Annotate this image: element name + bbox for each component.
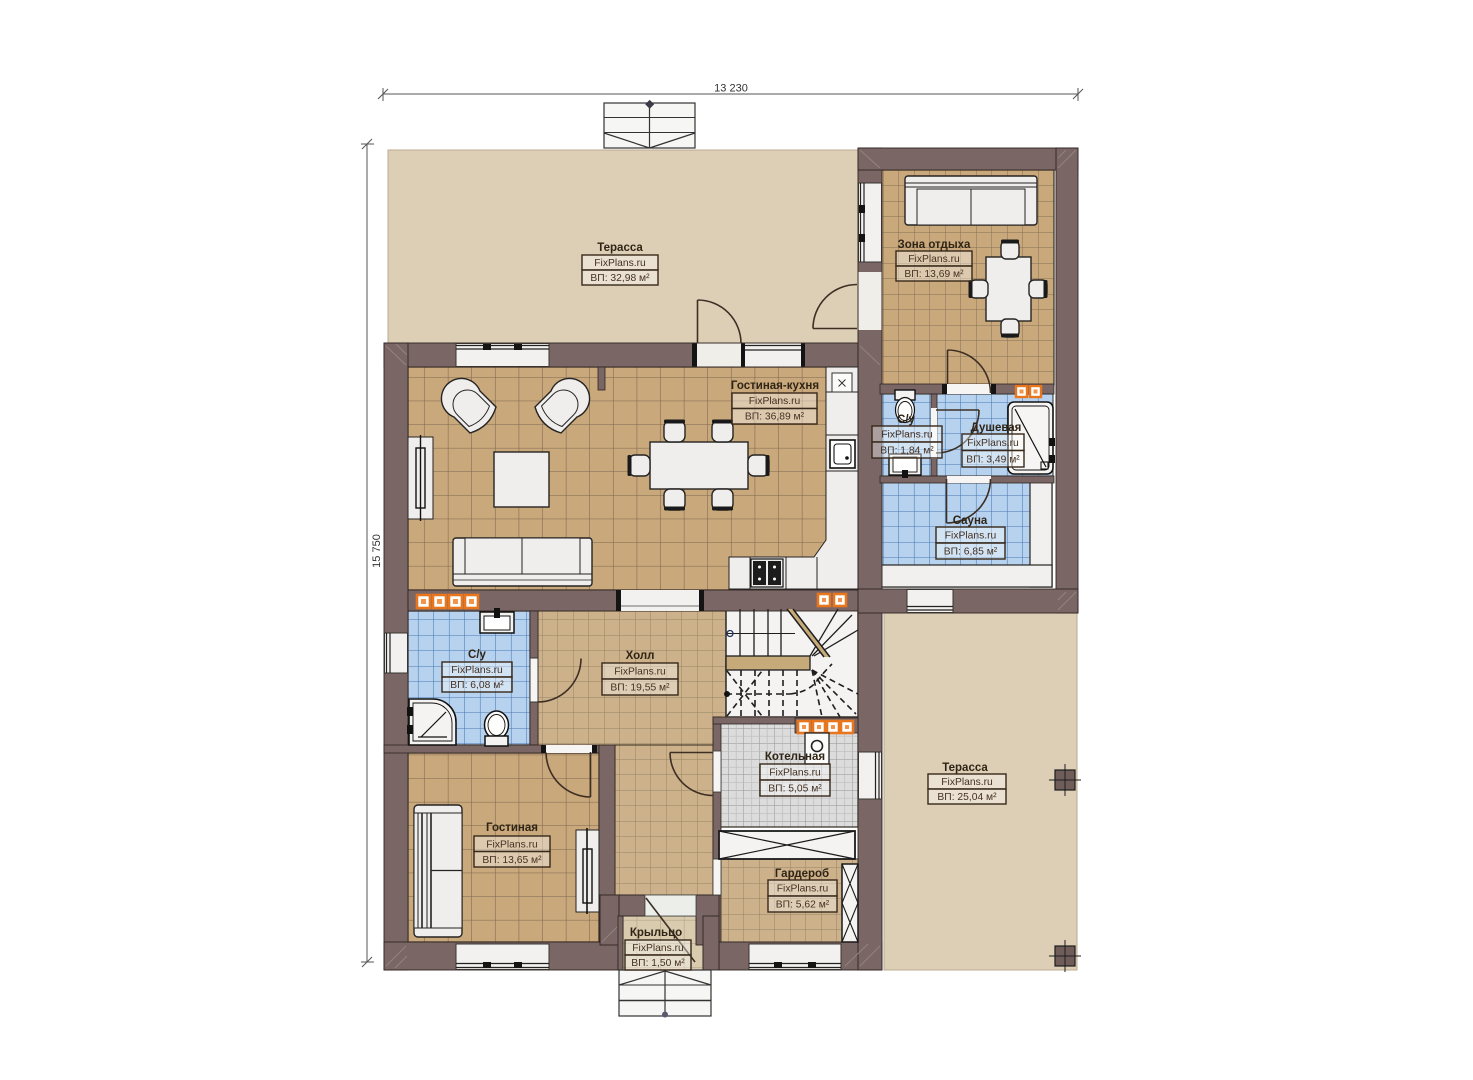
svg-text:Гостиная: Гостиная — [486, 822, 538, 834]
svg-text:FixPlans.ru: FixPlans.ru — [967, 438, 1019, 449]
svg-text:Крыльцо: Крыльцо — [630, 927, 682, 939]
svg-text:FixPlans.ru: FixPlans.ru — [777, 884, 829, 895]
svg-text:ВП: 5,62 м²: ВП: 5,62 м² — [776, 900, 830, 911]
svg-text:ВП: 32,98 м²: ВП: 32,98 м² — [590, 273, 650, 284]
svg-text:С/у: С/у — [897, 414, 916, 426]
svg-text:ВП: 19,55 м²: ВП: 19,55 м² — [610, 683, 670, 694]
svg-text:Душевая: Душевая — [971, 422, 1022, 434]
svg-text:FixPlans.ru: FixPlans.ru — [451, 665, 503, 676]
svg-text:Зона отдыха: Зона отдыха — [898, 239, 972, 251]
svg-text:Гардероб: Гардероб — [775, 868, 829, 880]
svg-text:ВП: 36,89 м²: ВП: 36,89 м² — [745, 412, 805, 423]
svg-text:ВП: 25,04 м²: ВП: 25,04 м² — [937, 792, 997, 803]
svg-text:15 750: 15 750 — [371, 534, 383, 568]
svg-text:FixPlans.ru: FixPlans.ru — [945, 531, 997, 542]
svg-text:Холл: Холл — [626, 650, 655, 662]
svg-text:ВП: 1,84 м²: ВП: 1,84 м² — [880, 446, 934, 457]
svg-text:FixPlans.ru: FixPlans.ru — [941, 777, 993, 788]
svg-text:ВП: 1,50 м²: ВП: 1,50 м² — [631, 958, 685, 969]
svg-text:Котельная: Котельная — [765, 751, 825, 763]
svg-text:FixPlans.ru: FixPlans.ru — [594, 258, 646, 269]
svg-text:FixPlans.ru: FixPlans.ru — [486, 840, 538, 851]
svg-text:FixPlans.ru: FixPlans.ru — [632, 943, 684, 954]
svg-text:ВП: 13,65 м²: ВП: 13,65 м² — [482, 855, 542, 866]
svg-text:ВП: 6,08 м²: ВП: 6,08 м² — [450, 680, 504, 691]
svg-text:Терасса: Терасса — [942, 762, 988, 774]
svg-text:FixPlans.ru: FixPlans.ru — [881, 430, 933, 441]
svg-text:FixPlans.ru: FixPlans.ru — [614, 667, 666, 678]
svg-text:FixPlans.ru: FixPlans.ru — [749, 396, 801, 407]
svg-text:Сауна: Сауна — [953, 515, 988, 527]
svg-text:С/у: С/у — [468, 649, 487, 661]
svg-text:Терасса: Терасса — [597, 242, 643, 254]
svg-text:ВП: 5,05 м²: ВП: 5,05 м² — [768, 784, 822, 795]
svg-text:Гостиная-кухня: Гостиная-кухня — [731, 380, 819, 392]
svg-text:FixPlans.ru: FixPlans.ru — [769, 768, 821, 779]
svg-text:FixPlans.ru: FixPlans.ru — [908, 254, 960, 265]
svg-text:ВП: 13,69 м²: ВП: 13,69 м² — [904, 269, 964, 280]
svg-text:ВП: 3,49 м²: ВП: 3,49 м² — [966, 455, 1020, 466]
svg-text:13 230: 13 230 — [714, 83, 748, 95]
svg-text:ВП: 6,85 м²: ВП: 6,85 м² — [944, 547, 998, 558]
